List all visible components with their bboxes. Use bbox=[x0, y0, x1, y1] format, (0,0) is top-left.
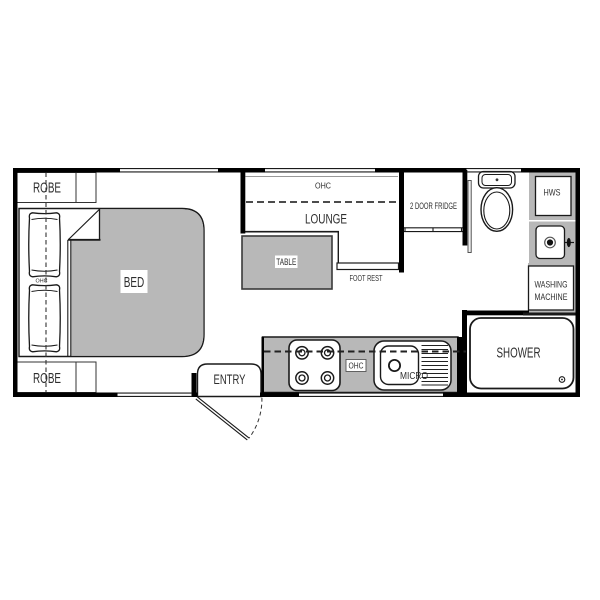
svg-text:WASHING: WASHING bbox=[535, 279, 568, 290]
svg-text:HWS: HWS bbox=[544, 188, 561, 199]
svg-text:LOUNGE: LOUNGE bbox=[305, 211, 347, 227]
svg-text:FOOT REST: FOOT REST bbox=[350, 274, 383, 283]
svg-text:OHC: OHC bbox=[315, 181, 331, 191]
svg-text:ROBE: ROBE bbox=[33, 180, 61, 197]
svg-text:MICRO: MICRO bbox=[400, 371, 428, 382]
svg-text:ROBE: ROBE bbox=[33, 370, 61, 387]
svg-text:BED: BED bbox=[124, 275, 145, 291]
svg-text:ENTRY: ENTRY bbox=[214, 372, 246, 388]
svg-text:SHOWER: SHOWER bbox=[497, 345, 541, 361]
svg-text:2 DOOR FRIDGE: 2 DOOR FRIDGE bbox=[410, 201, 457, 211]
svg-text:TABLE: TABLE bbox=[276, 257, 296, 267]
svg-text:MACHINE: MACHINE bbox=[535, 292, 568, 303]
svg-text:OHC: OHC bbox=[349, 360, 364, 370]
